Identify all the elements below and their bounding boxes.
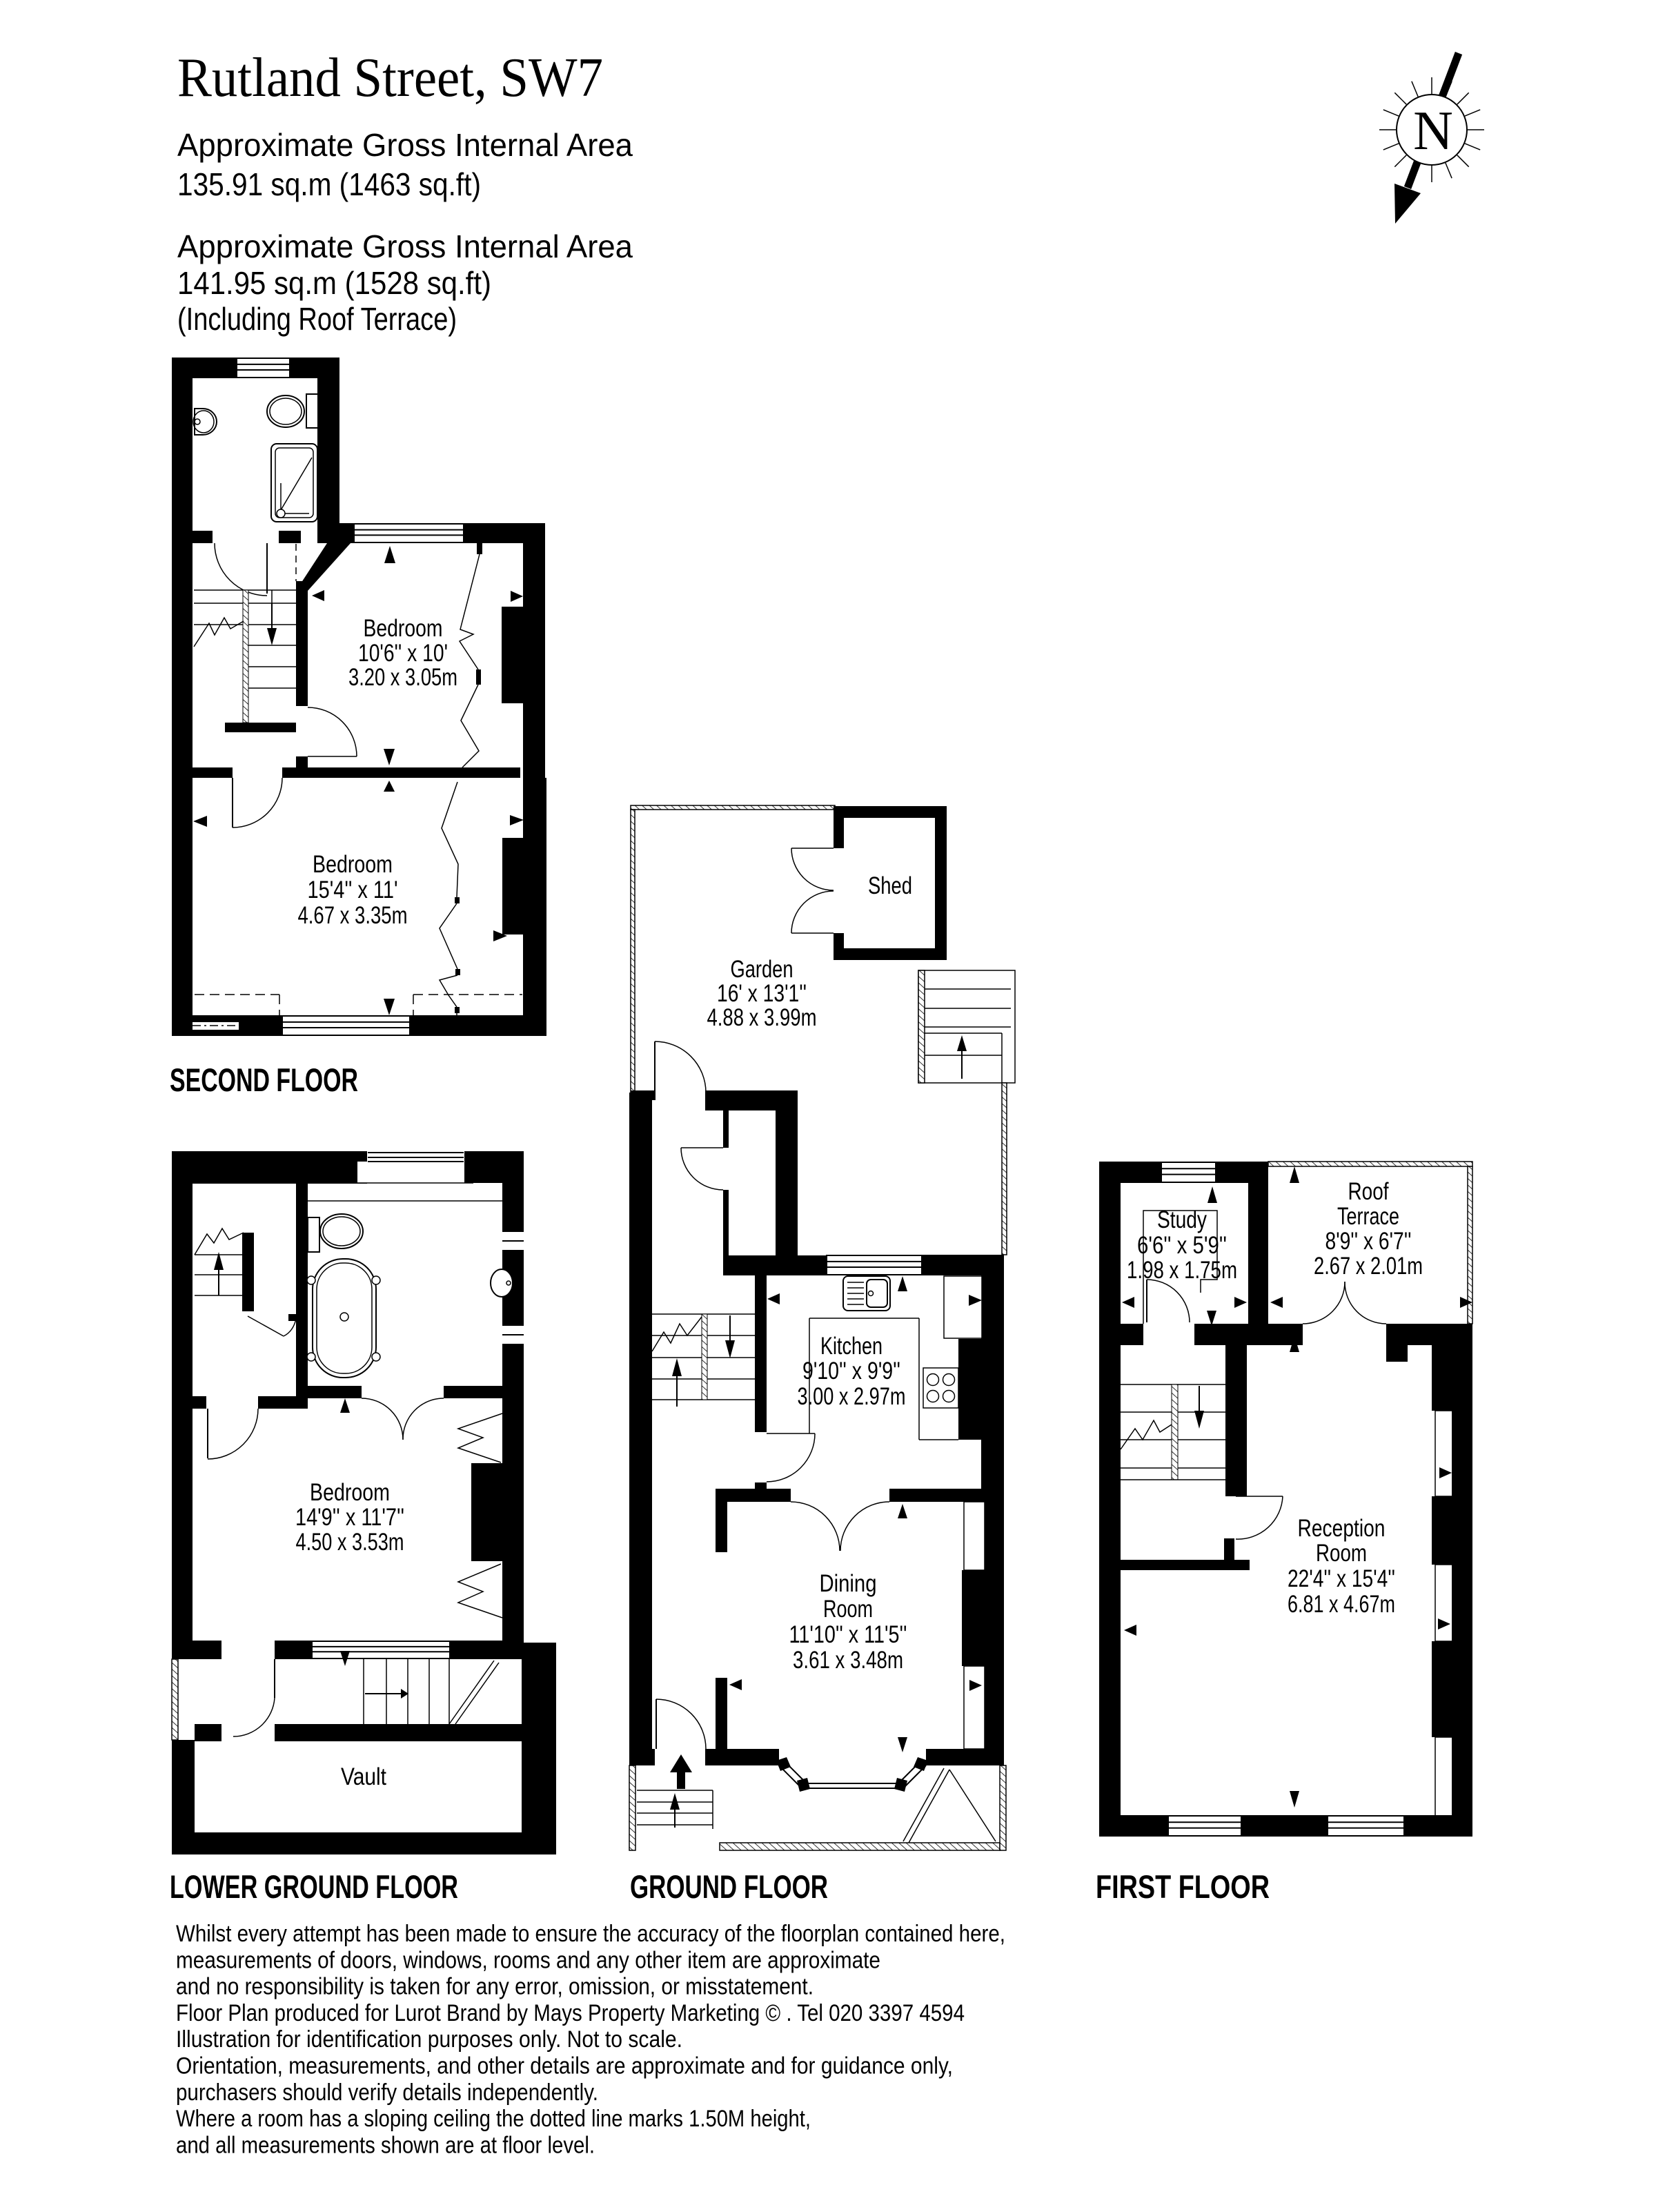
svg-text:Dining: Dining bbox=[820, 1570, 877, 1597]
svg-text:10'6'' x 10': 10'6'' x 10' bbox=[358, 640, 448, 667]
svg-text:135.91 sq.m (1463 sq.ft): 135.91 sq.m (1463 sq.ft) bbox=[177, 166, 481, 202]
svg-text:3.20 x 3.05m: 3.20 x 3.05m bbox=[348, 664, 457, 691]
svg-text:Approximate Gross Internal Are: Approximate Gross Internal Area bbox=[177, 228, 633, 264]
svg-text:purchasers should verify detai: purchasers should verify details indepen… bbox=[176, 2079, 598, 2106]
svg-text:LOWER GROUND FLOOR: LOWER GROUND FLOOR bbox=[170, 1868, 458, 1905]
svg-text:Bedroom: Bedroom bbox=[313, 851, 393, 878]
svg-text:4.50 x 3.53m: 4.50 x 3.53m bbox=[296, 1529, 404, 1556]
svg-text:16' x 13'1'': 16' x 13'1'' bbox=[717, 980, 807, 1007]
svg-text:3.00 x 2.97m: 3.00 x 2.97m bbox=[798, 1383, 906, 1410]
svg-text:11'10'' x 11'5'': 11'10'' x 11'5'' bbox=[789, 1621, 907, 1648]
svg-text:Vault: Vault bbox=[341, 1763, 386, 1790]
svg-text:1.98 x 1.75m: 1.98 x 1.75m bbox=[1127, 1257, 1237, 1284]
svg-text:Where a room has a sloping cei: Where a room has a sloping ceiling the d… bbox=[176, 2106, 811, 2132]
svg-text:Floor Plan produced for Lurot: Floor Plan produced for Lurot Brand by M… bbox=[176, 2000, 965, 2026]
svg-text:6.81 x 4.67m: 6.81 x 4.67m bbox=[1288, 1591, 1395, 1618]
svg-text:Whilst every attempt has been: Whilst every attempt has been made to en… bbox=[176, 1921, 1005, 1947]
svg-text:N: N bbox=[1413, 101, 1453, 162]
svg-text:22'4'' x 15'4'': 22'4'' x 15'4'' bbox=[1288, 1565, 1395, 1592]
svg-text:Orientation, measurements, and: Orientation, measurements, and other det… bbox=[176, 2053, 953, 2079]
svg-text:Garden: Garden bbox=[731, 956, 793, 983]
svg-text:GROUND FLOOR: GROUND FLOOR bbox=[630, 1868, 828, 1905]
svg-text:SECOND FLOOR: SECOND FLOOR bbox=[170, 1061, 358, 1098]
svg-text:(Including Roof Terrace): (Including Roof Terrace) bbox=[177, 301, 457, 337]
svg-text:Rutland Street, SW7: Rutland Street, SW7 bbox=[177, 48, 603, 108]
svg-text:9'10'' x 9'9'': 9'10'' x 9'9'' bbox=[802, 1358, 900, 1384]
svg-text:14'9'' x 11'7'': 14'9'' x 11'7'' bbox=[295, 1504, 404, 1531]
svg-text:15'4'' x 11': 15'4'' x 11' bbox=[308, 877, 398, 903]
svg-text:2.67 x 2.01m: 2.67 x 2.01m bbox=[1314, 1253, 1423, 1280]
svg-text:and all measurements shown are: and all measurements shown are at floor … bbox=[176, 2132, 595, 2158]
svg-text:Illustration for identificatio: Illustration for identification purposes… bbox=[176, 2026, 682, 2053]
svg-text:Room: Room bbox=[1316, 1540, 1367, 1567]
svg-text:Approximate Gross Internal Are: Approximate Gross Internal Area bbox=[177, 127, 633, 163]
svg-text:Terrace: Terrace bbox=[1337, 1203, 1399, 1230]
svg-text:and no responsibility is taken: and no responsibility is taken for any e… bbox=[176, 1974, 814, 2000]
svg-text:8'9'' x 6'7'': 8'9'' x 6'7'' bbox=[1325, 1228, 1412, 1255]
svg-text:FIRST FLOOR: FIRST FLOOR bbox=[1096, 1868, 1270, 1905]
svg-text:6'6'' x 5'9'': 6'6'' x 5'9'' bbox=[1137, 1232, 1227, 1259]
svg-text:3.61 x 3.48m: 3.61 x 3.48m bbox=[793, 1647, 903, 1674]
svg-text:Room: Room bbox=[823, 1596, 873, 1623]
svg-text:141.95 sq.m (1528 sq.ft): 141.95 sq.m (1528 sq.ft) bbox=[177, 265, 491, 301]
svg-text:4.88 x 3.99m: 4.88 x 3.99m bbox=[707, 1004, 817, 1031]
svg-text:4.67 x 3.35m: 4.67 x 3.35m bbox=[298, 902, 408, 929]
svg-text:Roof: Roof bbox=[1348, 1178, 1389, 1205]
svg-text:Kitchen: Kitchen bbox=[820, 1333, 883, 1360]
svg-text:Study: Study bbox=[1157, 1206, 1207, 1233]
svg-text:Shed: Shed bbox=[868, 872, 912, 899]
svg-text:measurements of doors, windows: measurements of doors, windows, rooms an… bbox=[176, 1947, 880, 1973]
svg-text:Bedroom: Bedroom bbox=[310, 1479, 390, 1506]
svg-text:Bedroom: Bedroom bbox=[364, 615, 443, 642]
svg-text:Reception: Reception bbox=[1298, 1515, 1386, 1542]
